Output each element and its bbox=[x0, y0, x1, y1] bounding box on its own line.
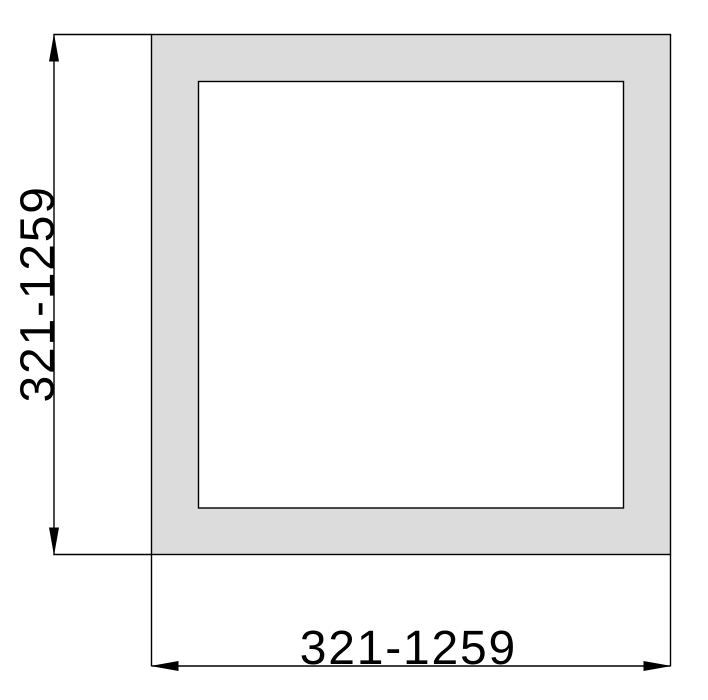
svg-text:321-1259: 321-1259 bbox=[300, 622, 517, 675]
svg-text:321-1259: 321-1259 bbox=[12, 185, 65, 402]
